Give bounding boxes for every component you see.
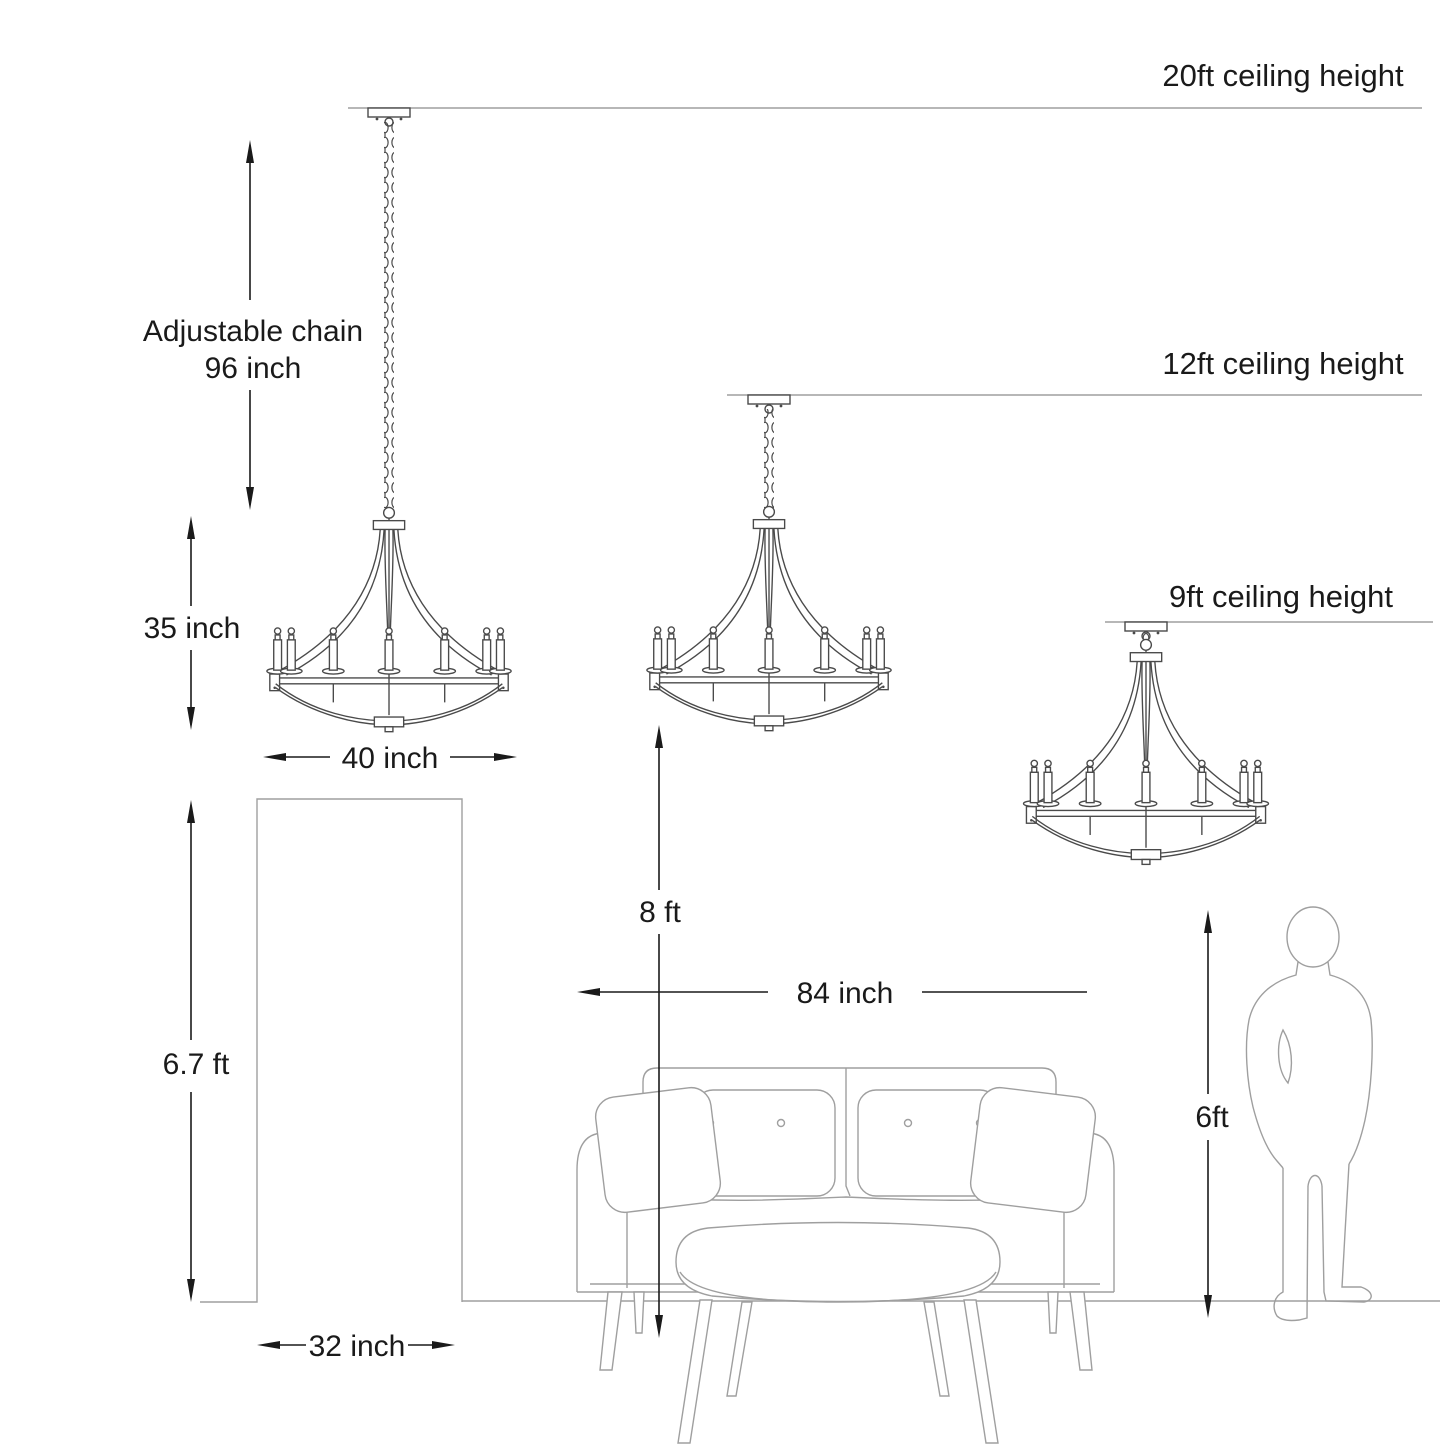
label-floor-to-fixture: 8 ft — [639, 896, 681, 929]
label-sofa-width: 84 inch — [797, 977, 894, 1010]
chandelier-body-12ft — [647, 506, 891, 730]
diagram-canvas: 20ft ceiling height 12ft ceiling height … — [0, 0, 1445, 1445]
person-silhouette — [1246, 907, 1372, 1321]
chain-12ft — [764, 409, 774, 508]
chain-20ft — [384, 122, 394, 508]
label-ceiling-9ft: 9ft ceiling height — [1169, 579, 1393, 614]
ceiling-mount-9ft — [1125, 622, 1167, 640]
chandelier-body-9ft — [1024, 639, 1269, 864]
door-frame — [200, 799, 462, 1302]
coffee-table — [676, 1223, 1000, 1444]
label-door-height: 6.7 ft — [163, 1048, 230, 1081]
size-guide-diagram: 20ft ceiling height 12ft ceiling height … — [0, 0, 1445, 1445]
label-door-width: 32 inch — [309, 1330, 406, 1363]
chandelier-20ft — [267, 108, 511, 732]
chandelier-body-20ft — [267, 507, 511, 731]
label-person-height: 6ft — [1195, 1101, 1229, 1134]
label-adjustable-chain: Adjustable chain — [143, 315, 363, 348]
label-fixture-height: 35 inch — [144, 612, 241, 645]
label-ceiling-20ft: 20ft ceiling height — [1162, 58, 1404, 93]
label-fixture-width: 40 inch — [342, 742, 439, 775]
dim-floor-to-fixture — [655, 725, 663, 1338]
chandelier-12ft — [647, 395, 891, 731]
label-chain-length: 96 inch — [205, 352, 302, 385]
chandelier-9ft — [1024, 622, 1269, 864]
label-ceiling-12ft: 12ft ceiling height — [1162, 346, 1404, 381]
